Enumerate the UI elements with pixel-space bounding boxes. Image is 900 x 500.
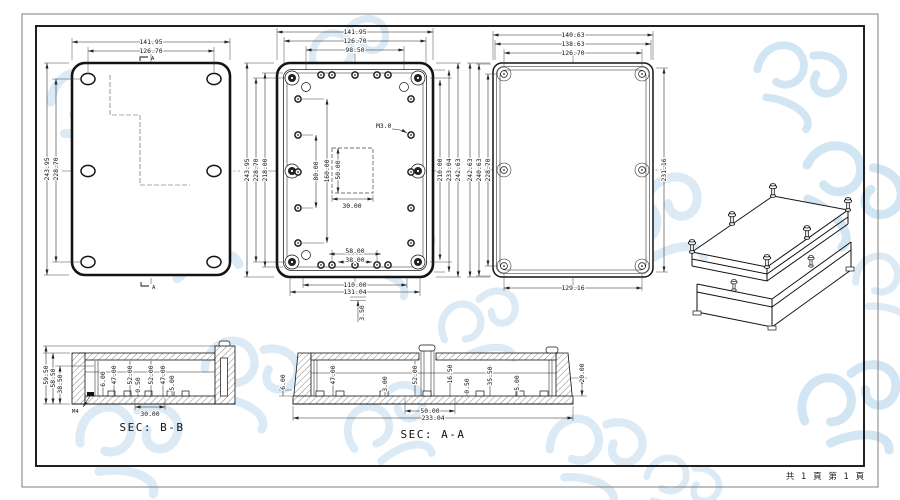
dim-text: 80.00	[312, 161, 320, 180]
dim-text: 240.63	[475, 158, 483, 181]
ribs	[108, 391, 189, 396]
dim-text: 98.50	[345, 46, 364, 54]
clearance-hole	[302, 251, 311, 260]
section-aa-title: SEC: A-A	[401, 428, 466, 441]
insert-callout: M4	[72, 409, 79, 415]
dim-text: 129.16	[561, 284, 584, 292]
section-aa-view: 6.00 47.00 3.00 52.00 16.50 0.50 35.50 5…	[279, 345, 587, 441]
dim-text: 210.00	[436, 158, 444, 181]
dim-text: 228.70	[52, 157, 60, 180]
section-bb-view: M4 59.50 58.50 38.50 6.00 47.00 52.00 0.…	[42, 341, 235, 434]
dim-text: 141.95	[139, 38, 162, 46]
top-band-right	[436, 353, 556, 360]
dim-text: 16.50	[446, 364, 454, 383]
base-outer-view: 140.63 138.63 126.70 242.63 240.63 228.7…	[466, 31, 668, 292]
right-dim: 231.16	[656, 68, 668, 272]
clearance-hole	[302, 83, 311, 92]
right-slot	[221, 358, 228, 396]
dim-text: 138.63	[561, 40, 584, 48]
dim-text: 242.63	[466, 158, 474, 181]
lid-outline	[72, 63, 230, 275]
dim-text: 228.70	[252, 158, 260, 181]
dim-text: 47.00	[110, 365, 118, 384]
dim-text: 47.00	[159, 365, 167, 384]
dim-text: 52.00	[147, 365, 155, 384]
base-right-dims: 210.00 233.04 242.63	[430, 63, 462, 277]
page-footer: 共 1 頁 第 1 頁	[786, 471, 866, 482]
center-post-cap	[419, 345, 435, 351]
dim-text: 5.00	[168, 375, 176, 391]
right-post-cap	[546, 347, 558, 353]
dim-text: 38.50	[56, 374, 64, 393]
clearance-hole	[400, 83, 409, 92]
dim-text: 35.50	[486, 366, 494, 385]
dim-text: 243.95	[43, 157, 51, 180]
dim-text: 243.95	[243, 158, 251, 181]
section-marker-top: A	[151, 56, 155, 62]
dim-text: 160.00	[323, 159, 331, 182]
dim-text: 131.04	[343, 288, 366, 296]
dim-text: 58.00	[345, 247, 364, 255]
dim-text: 30.00	[140, 410, 159, 418]
isometric-view	[688, 184, 854, 330]
dim-text: 126.70	[343, 37, 366, 45]
m4-insert	[87, 392, 94, 396]
dim-text: 47.00	[329, 365, 337, 384]
base-inner-view: M3.0 141.95 126.70 98.50 243.95 228.70 2…	[243, 28, 462, 322]
ribs	[316, 391, 548, 396]
dim-text: 52.00	[411, 365, 419, 384]
section-marker-bottom: A	[152, 285, 156, 291]
top-band	[80, 353, 215, 360]
dim-text: 0.50	[463, 378, 471, 394]
dim-text: 3.00	[381, 376, 389, 392]
dim-text: 141.95	[343, 28, 366, 36]
dim-text: 126.70	[139, 47, 162, 55]
left-wall	[72, 353, 85, 404]
right-dim: 20.00	[570, 363, 587, 396]
dim-text: 30.00	[342, 202, 361, 210]
floor	[293, 396, 573, 404]
dim-text: 50.00	[334, 160, 342, 179]
dim-text: 228.70	[484, 158, 492, 181]
section-bb-title: SEC: B-B	[120, 421, 185, 434]
thread-label: M3.0	[376, 122, 392, 130]
dim-text: 140.63	[561, 31, 584, 39]
dim-text: 6.00	[99, 371, 107, 387]
dim-text: 0.50	[134, 377, 142, 393]
dim-text: 20.00	[578, 363, 586, 382]
dim-text: 5.00	[513, 375, 521, 391]
dim-text: 233.04	[421, 414, 444, 422]
dim-text: 38.00	[345, 256, 364, 264]
dim-text: 218.00	[261, 158, 269, 181]
dim-text: 52.00	[126, 365, 134, 384]
drawing-sheet: 共 1 頁 第 1 頁 141.95 126.70 243.95 228.70 …	[0, 0, 900, 500]
dim-text: 231.16	[660, 158, 668, 181]
dim-text: 242.63	[454, 158, 462, 181]
engineering-drawing-canvas: 共 1 頁 第 1 頁 141.95 126.70 243.95 228.70 …	[0, 0, 900, 500]
outline	[493, 63, 653, 277]
dim-text: 126.70	[561, 49, 584, 57]
top-band-left	[311, 353, 419, 360]
dim-text: 233.04	[445, 158, 453, 181]
floor	[85, 396, 215, 404]
dim-text: 6.00	[279, 374, 287, 390]
lid-front-view: 141.95 126.70 243.95 228.70 A A	[43, 38, 240, 291]
dim-text: 3.50	[358, 305, 366, 321]
